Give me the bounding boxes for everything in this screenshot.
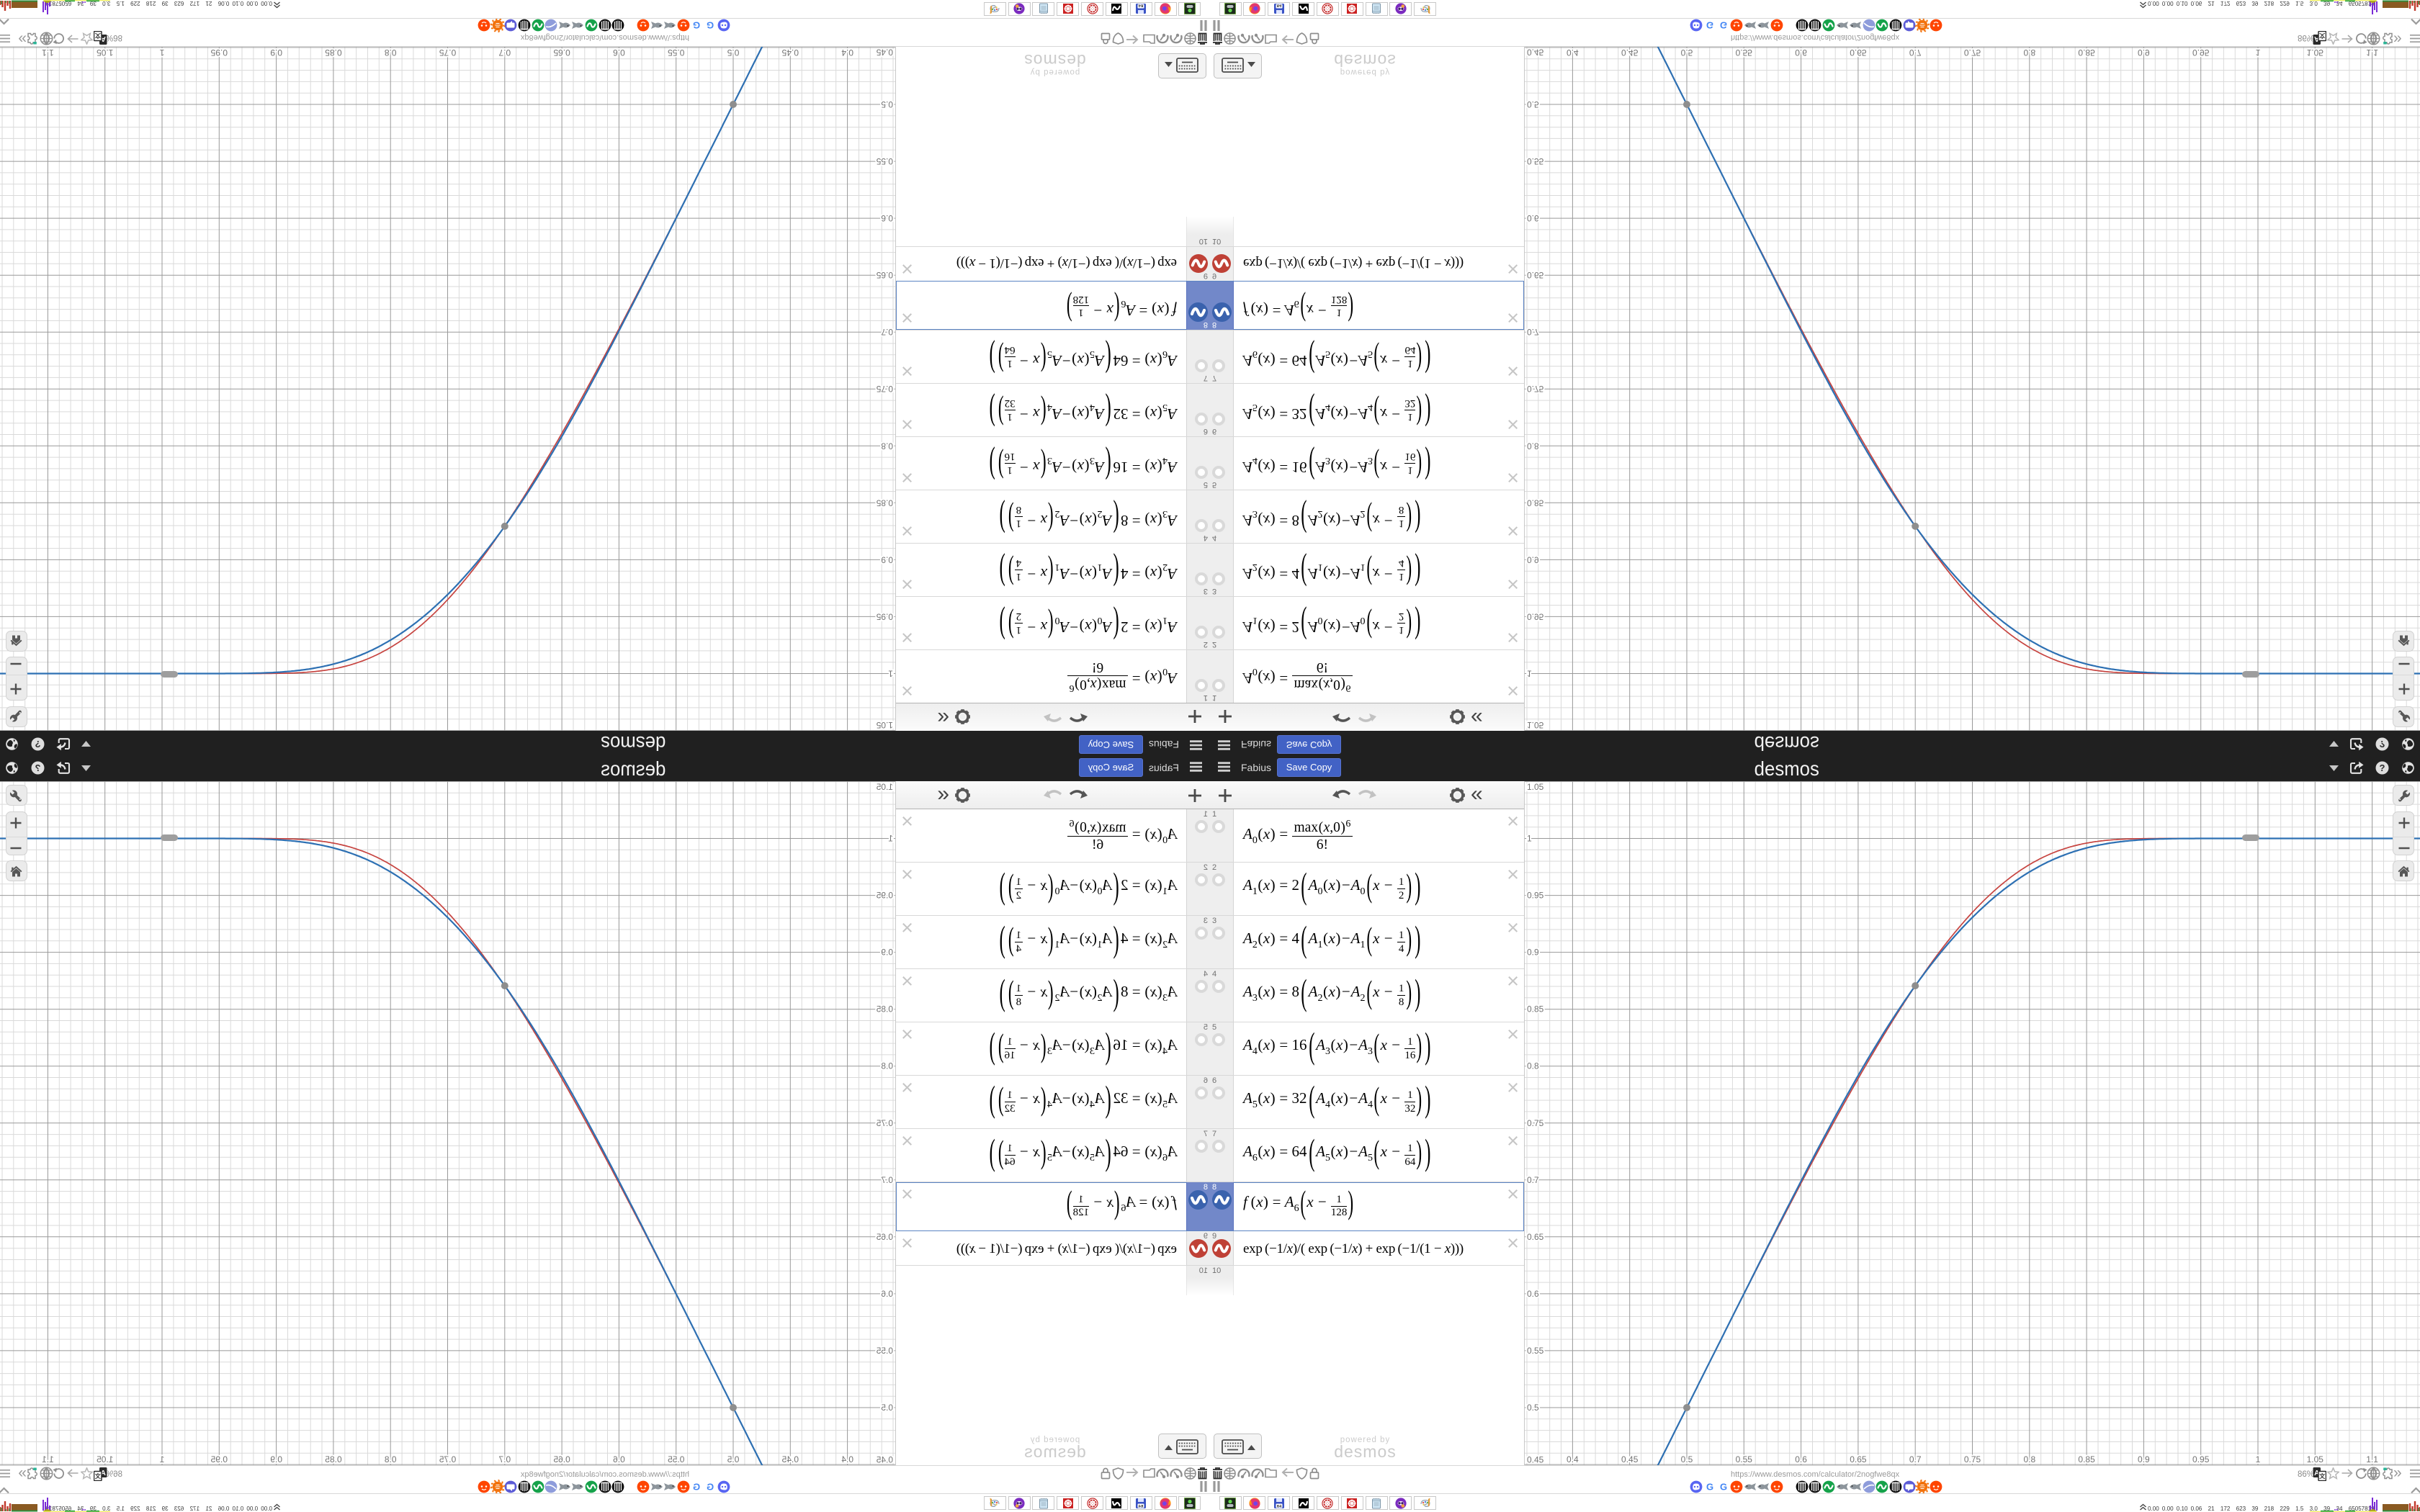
svg-text:0.5: 0.5 — [1681, 48, 1693, 58]
svg-text:1: 1 — [159, 48, 164, 58]
svg-text:0.85: 0.85 — [2078, 48, 2095, 58]
svg-text:0.5: 0.5 — [727, 1454, 739, 1464]
svg-text:0.75: 0.75 — [1964, 48, 1981, 58]
svg-text:?: ? — [2380, 739, 2385, 750]
svg-text:0.45: 0.45 — [1527, 1455, 1544, 1465]
svg-text:0.6: 0.6 — [881, 1289, 893, 1299]
svg-text:64: 64 — [1139, 1504, 1144, 1509]
svg-text:0.9: 0.9 — [881, 948, 893, 958]
svg-text:0.6: 0.6 — [613, 48, 625, 58]
svg-text:0.8: 0.8 — [385, 48, 397, 58]
svg-text:1.05: 1.05 — [97, 48, 114, 58]
svg-text:0.45: 0.45 — [1621, 48, 1639, 58]
svg-text:1.05: 1.05 — [876, 720, 893, 730]
svg-text:0.6: 0.6 — [1527, 1289, 1539, 1299]
svg-text:0.7: 0.7 — [1909, 48, 1922, 58]
svg-text:0.55: 0.55 — [876, 1346, 893, 1356]
svg-text:0.9: 0.9 — [270, 48, 282, 58]
svg-text:64: 64 — [1276, 3, 1281, 8]
svg-text:0.55: 0.55 — [1736, 48, 1753, 58]
svg-text:0.95: 0.95 — [876, 891, 893, 901]
svg-text:0.9: 0.9 — [881, 554, 893, 564]
svg-text:0.65: 0.65 — [1527, 1232, 1544, 1242]
svg-text:0.8: 0.8 — [1527, 441, 1539, 451]
svg-text:0.85: 0.85 — [325, 1454, 342, 1464]
svg-text:0.8: 0.8 — [881, 441, 893, 451]
svg-text:0.7: 0.7 — [498, 48, 511, 58]
svg-text:0.95: 0.95 — [210, 48, 228, 58]
svg-text:0.75: 0.75 — [439, 48, 456, 58]
svg-text:0.8: 0.8 — [881, 1061, 893, 1071]
svg-text:0.6: 0.6 — [1527, 213, 1539, 223]
svg-text:0.7: 0.7 — [1527, 327, 1539, 337]
svg-text:0.55: 0.55 — [1736, 1454, 1753, 1464]
svg-text:G: G — [1706, 20, 1713, 31]
svg-text:1.05: 1.05 — [1527, 782, 1544, 792]
svg-text:1: 1 — [1527, 669, 1532, 679]
svg-text:0.55: 0.55 — [1527, 1346, 1544, 1356]
svg-text:1.05: 1.05 — [1527, 720, 1544, 730]
svg-text:0.85: 0.85 — [1527, 1004, 1544, 1014]
svg-text:0.5: 0.5 — [1681, 1454, 1693, 1464]
svg-text:文: 文 — [2319, 1472, 2326, 1480]
svg-text:0.45: 0.45 — [781, 48, 799, 58]
svg-text:0.65: 0.65 — [876, 1232, 893, 1242]
svg-text:G: G — [707, 20, 714, 31]
svg-text:G: G — [1706, 1482, 1713, 1493]
svg-text:0.5: 0.5 — [1527, 99, 1539, 109]
svg-text:64: 64 — [1139, 3, 1144, 8]
svg-text:0.45: 0.45 — [876, 48, 893, 58]
svg-text:0.95: 0.95 — [1527, 611, 1544, 621]
svg-text:G: G — [693, 20, 700, 31]
svg-text:0.95: 0.95 — [1527, 891, 1544, 901]
svg-text:0.75: 0.75 — [1964, 1454, 1981, 1464]
svg-text:0.95: 0.95 — [876, 611, 893, 621]
svg-text:0.95: 0.95 — [2192, 48, 2210, 58]
svg-text:1: 1 — [159, 1454, 164, 1464]
svg-text:0.65: 0.65 — [553, 48, 570, 58]
svg-text:0.95: 0.95 — [210, 1454, 228, 1464]
svg-text:G: G — [693, 1482, 700, 1493]
svg-text:0.6: 0.6 — [613, 1454, 625, 1464]
svg-text:0.9: 0.9 — [2138, 1454, 2150, 1464]
svg-text:0.85: 0.85 — [2078, 1454, 2095, 1464]
svg-text:0.9: 0.9 — [1527, 554, 1539, 564]
svg-text:0.65: 0.65 — [1850, 48, 1867, 58]
svg-text:0.85: 0.85 — [876, 1004, 893, 1014]
svg-text:文: 文 — [2319, 32, 2326, 40]
svg-text:1: 1 — [2256, 48, 2261, 58]
svg-text:1.05: 1.05 — [2307, 48, 2324, 58]
svg-text:0.4: 0.4 — [841, 48, 853, 58]
svg-text:0.7: 0.7 — [881, 1175, 893, 1185]
svg-text:0.9: 0.9 — [1527, 948, 1539, 958]
svg-text:1.1: 1.1 — [42, 1454, 54, 1464]
svg-text:0.55: 0.55 — [668, 48, 685, 58]
svg-text:G: G — [1720, 1482, 1727, 1493]
svg-text:1: 1 — [888, 669, 893, 679]
svg-text:0.8: 0.8 — [2023, 1454, 2035, 1464]
svg-text:0.45: 0.45 — [876, 1455, 893, 1465]
svg-text:0.9: 0.9 — [2138, 48, 2150, 58]
svg-text:?: ? — [35, 739, 40, 750]
svg-text:0.85: 0.85 — [1527, 498, 1544, 508]
svg-text:0.7: 0.7 — [1909, 1454, 1922, 1464]
svg-text:0.85: 0.85 — [876, 498, 893, 508]
svg-text:0.65: 0.65 — [553, 1454, 570, 1464]
svg-text:64: 64 — [1276, 1504, 1281, 1509]
svg-text:0.8: 0.8 — [1527, 1061, 1539, 1071]
svg-text:0.7: 0.7 — [498, 1454, 511, 1464]
svg-text:文: 文 — [94, 32, 101, 40]
svg-text:0.75: 0.75 — [876, 384, 893, 394]
svg-text:0.6: 0.6 — [1795, 1454, 1807, 1464]
svg-text:0.45: 0.45 — [1527, 48, 1544, 58]
svg-text:0.55: 0.55 — [1527, 156, 1544, 166]
svg-text:0.5: 0.5 — [1527, 1403, 1539, 1413]
svg-text:0.4: 0.4 — [841, 1454, 853, 1464]
svg-text:0.65: 0.65 — [1850, 1454, 1867, 1464]
svg-text:0.5: 0.5 — [881, 99, 893, 109]
svg-text:1.1: 1.1 — [42, 48, 54, 58]
svg-text:0.75: 0.75 — [439, 1454, 456, 1464]
svg-text:0.65: 0.65 — [1527, 270, 1544, 280]
svg-text:0.8: 0.8 — [2023, 48, 2035, 58]
svg-text:0.7: 0.7 — [881, 327, 893, 337]
svg-text:0.6: 0.6 — [1795, 48, 1807, 58]
svg-text:1: 1 — [1527, 834, 1532, 844]
svg-text:0.85: 0.85 — [325, 48, 342, 58]
svg-text:0.5: 0.5 — [881, 1403, 893, 1413]
svg-text:1.1: 1.1 — [2366, 1454, 2378, 1464]
svg-text:G: G — [707, 1482, 714, 1493]
svg-text:0.65: 0.65 — [876, 270, 893, 280]
svg-text:0.55: 0.55 — [668, 1454, 685, 1464]
svg-text:1.05: 1.05 — [2307, 1454, 2324, 1464]
svg-text:?: ? — [2380, 762, 2385, 773]
svg-text:0.5: 0.5 — [727, 48, 739, 58]
svg-text:0.4: 0.4 — [1567, 1454, 1579, 1464]
svg-text:0.95: 0.95 — [2192, 1454, 2210, 1464]
svg-text:0.75: 0.75 — [1527, 1118, 1544, 1128]
svg-text:0.45: 0.45 — [781, 1454, 799, 1464]
svg-text:0.4: 0.4 — [1567, 48, 1579, 58]
svg-text:0.9: 0.9 — [270, 1454, 282, 1464]
svg-text:文: 文 — [94, 1472, 101, 1480]
svg-text:0.45: 0.45 — [1621, 1454, 1639, 1464]
svg-text:0.6: 0.6 — [881, 213, 893, 223]
svg-text:1.1: 1.1 — [2366, 48, 2378, 58]
svg-text:0.75: 0.75 — [876, 1118, 893, 1128]
svg-text:0.7: 0.7 — [1527, 1175, 1539, 1185]
svg-text:G: G — [1720, 20, 1727, 31]
svg-text:1: 1 — [888, 834, 893, 844]
svg-text:1.05: 1.05 — [97, 1454, 114, 1464]
svg-text:0.55: 0.55 — [876, 156, 893, 166]
svg-text:1.05: 1.05 — [876, 782, 893, 792]
svg-text:?: ? — [35, 762, 40, 773]
svg-text:0.8: 0.8 — [385, 1454, 397, 1464]
svg-text:1: 1 — [2256, 1454, 2261, 1464]
svg-text:0.75: 0.75 — [1527, 384, 1544, 394]
